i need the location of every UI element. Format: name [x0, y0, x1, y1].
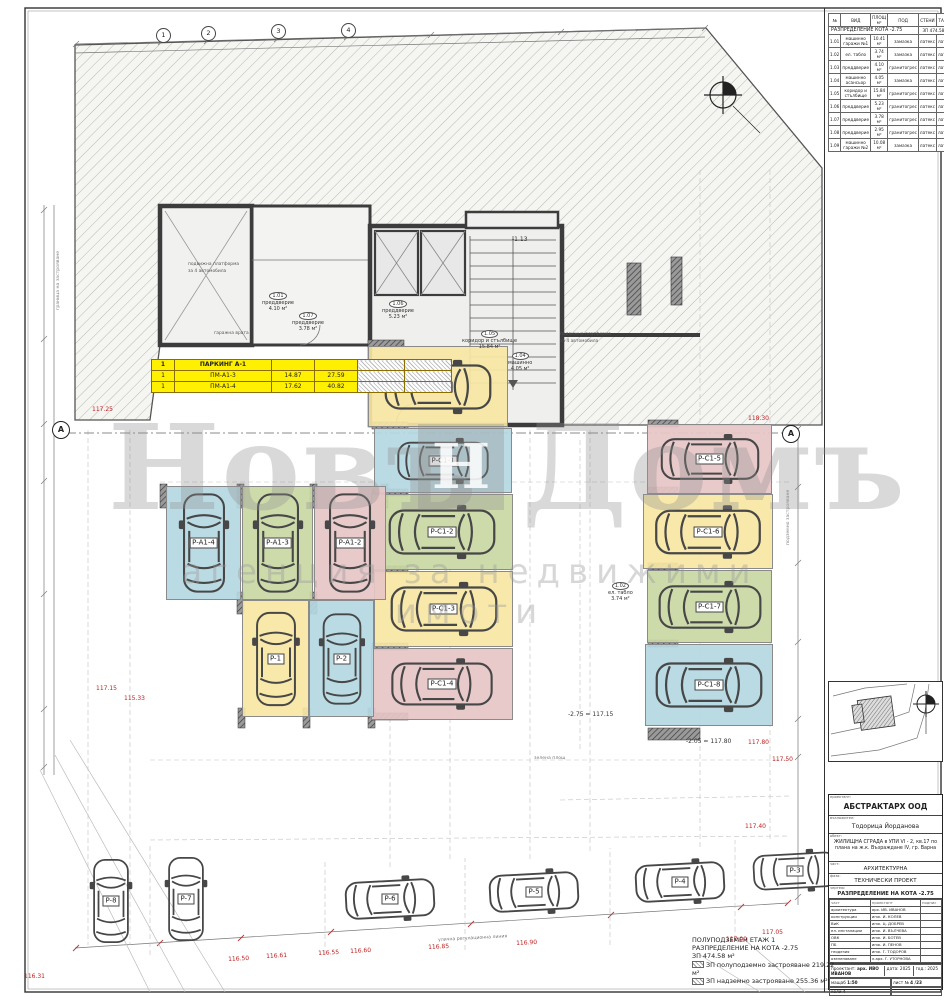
parking-spot-label: P-7 [177, 894, 194, 905]
signature-sign [920, 949, 941, 956]
phase-name: ТЕХНИЧЕСКИ ПРОЕКТ [829, 878, 942, 884]
site-location-box [828, 681, 943, 762]
schedule-cell: 10.08 м² [871, 139, 888, 152]
annotation: 116.55 [318, 950, 339, 958]
parking-spot-P-A1-3: P-A1-3 [242, 486, 313, 600]
schedule-cell: гранитогрес [888, 113, 919, 126]
signature-row: ОВКинж. И. БОТЕВ [830, 935, 942, 942]
company-name: АБСТРАКТАРХ ООД [829, 802, 942, 811]
garage-table-hatch-cell [358, 371, 405, 382]
schedule-cell: 4.10 м² [871, 61, 888, 74]
schedule-cell: латекс [918, 74, 936, 87]
part-label: част: [830, 862, 840, 866]
parking-spot-label: P-A1-3 [263, 538, 292, 549]
signature-row: конструкцииинж. И. КОЛЕВ [830, 914, 942, 921]
annotation: 117.15 [96, 686, 117, 693]
room-label-1.07: 1.07преддверие3.78 м² [292, 312, 324, 332]
annotation: 117.25 [92, 407, 113, 414]
signature-name: инж. И. ПЕНОВ [870, 942, 920, 949]
annotation: подземно застрояване [786, 490, 793, 545]
schedule-cell: латекс [937, 139, 944, 152]
object-label: обект: [830, 834, 842, 838]
parking-spot-P-A1-4: P-A1-4 [166, 486, 241, 600]
parking-spot-label: P-C1-2 [428, 527, 457, 538]
schedule-cell: латекс [918, 100, 936, 113]
signature-row: озеленяванел.арх. Г. УТОРНОВА [830, 956, 942, 963]
schedule-cell: машинно гаражи №2 [841, 139, 871, 152]
annotation: гаражна врата [214, 331, 249, 338]
copy-count: коли 4 [829, 987, 891, 996]
signature-part: конструкции [830, 914, 871, 921]
parking-spot-P-2: P-2 [309, 600, 374, 717]
annotation: 117.40 [745, 824, 766, 831]
schedule-cell: 1.04 [829, 74, 841, 87]
schedule-cell: латекс [937, 74, 944, 87]
annotation: 116.90 [516, 940, 537, 948]
schedule-cell: преддверие [841, 113, 871, 126]
schedule-cell: латекс [918, 139, 936, 152]
signature-row: ВиКинж. Ц. ДОБРЕВ [830, 921, 942, 928]
schedule-cell: замазка [888, 139, 919, 152]
parking-spot-label: P-1 [267, 653, 284, 664]
room-area: 15.84 м² [462, 344, 517, 350]
parking-spot-label: P-8 [102, 896, 119, 907]
part-name: АРХИТЕКТУРНА [829, 866, 942, 872]
schedule-cell: 3.78 м² [871, 113, 888, 126]
schedule-cell: латекс [918, 48, 936, 61]
signature-name: инж. Ц. ДОБРЕВ [870, 921, 920, 928]
parking-spot-P-C1-7: P-C1-7 [647, 570, 772, 643]
garage-table-cell: 17.62 [272, 382, 315, 393]
section-mark-2: А [782, 425, 800, 443]
parking-spot-label: P-A1-4 [189, 538, 218, 549]
schedule-cell: замазка [888, 74, 919, 87]
room-schedule-table: №ВИДПЛОЩ м²ПОДСТЕНИТАВАН РАЗПРЕДЕЛЕНИЕ К… [828, 13, 944, 152]
parking-spot-P-1: P-1 [242, 600, 309, 717]
schedule-row: 1.05коридор и стълбище15.84 м²гранитогре… [829, 87, 944, 100]
parking-spot-label: P-C1-7 [695, 601, 724, 612]
note-distribution: РАЗПРЕДЕЛЕНИЕ НА КОТА -2.75 [692, 944, 842, 952]
annotation: 115.33 [124, 696, 145, 703]
schedule-cell: латекс [937, 100, 944, 113]
parking-spot-P-C1-3: P-C1-3 [374, 571, 513, 647]
footer-spare [891, 987, 942, 996]
room-number: 1.04 [512, 352, 529, 360]
schedule-column-header: ВИД [841, 14, 871, 27]
schedule-cell: латекс [937, 48, 944, 61]
annotation: граница на застрояване [56, 251, 63, 310]
garage-table-row: 1ПАРКИНГ А-1 [152, 360, 452, 371]
parking-spot-label: P-C1-3 [429, 604, 458, 615]
signature-header-cell: част [830, 900, 871, 907]
signature-sign [920, 928, 941, 935]
schedule-row: 1.01машинно гаражи №110.41 м²замазкалате… [829, 35, 944, 48]
parking-spot-P-6: P-6 [327, 868, 453, 930]
note-area: ЗП 474.58 м² [692, 952, 842, 960]
annotation: -1.13 [512, 237, 528, 244]
garage-table-cell: 1 [152, 360, 175, 371]
annotation: подвижна платформа за 4 автомобила [188, 262, 239, 275]
annotation: подвижна платформа за 4 автомобила [560, 332, 611, 345]
annotation: -2.05 = 117.80 [686, 739, 731, 746]
schedule-cell: латекс [937, 113, 944, 126]
schedule-cell: латекс [918, 113, 936, 126]
schedule-area-note: ЗП 474.58 м² [918, 27, 944, 35]
room-label-1.04: 1.04машинно4.05 м² [508, 352, 532, 372]
title-block-footer: проектант: арх. ИВО ИВАНОВ дата: 2025 го… [829, 963, 942, 996]
signature-name: арх. ИВ. ИВАНОВ [870, 907, 920, 914]
drawing-note-block: ПОЛУПОДЗЕМЕН ЕТАЖ 1 РАЗПРЕДЕЛЕНИЕ НА КОТ… [692, 936, 842, 985]
signature-name: инж. Г. ТОДОРОВ [870, 949, 920, 956]
signature-name: инж. И. ВЪЛЧЕВА [870, 928, 920, 935]
axis-bubble-3: 3 [271, 24, 286, 39]
parking-spot-label: P-C1-4 [428, 679, 457, 690]
room-label-1.02: 1.02ел. табло3.74 м² [608, 582, 633, 602]
schedule-cell: латекс [937, 87, 944, 100]
schedule-cell: гранитогрес [888, 100, 919, 113]
schedule-cell: 1.09 [829, 139, 841, 152]
schedule-cell: преддверие [841, 126, 871, 139]
annotation: улична регулационна линия [438, 934, 507, 944]
parking-spot-label: P-5 [525, 887, 542, 898]
note-aboveground: ЗП надземно застрояване 255.36 м² [692, 977, 842, 985]
signature-sign [920, 907, 941, 914]
schedule-cell: 1.03 [829, 61, 841, 74]
annotation: зелена площ [534, 756, 565, 763]
parking-spot-P-C1-1: P-C1-1 [374, 428, 512, 493]
room-number: 1.05 [481, 330, 498, 338]
schedule-cell: 1.08 [829, 126, 841, 139]
annotation: 116.31 [24, 974, 45, 981]
annotation: 116.60 [350, 948, 371, 956]
garage-table-hatch-cell [405, 371, 452, 382]
signature-row: ел. инсталацииинж. И. ВЪЛЧЕВА [830, 928, 942, 935]
room-label-1.05: 1.05коридор и стълбище15.84 м² [462, 330, 517, 350]
signature-header-cell: проектант [870, 900, 920, 907]
parking-spot-P-7: P-7 [157, 843, 215, 955]
annotation: 116.85 [428, 944, 449, 952]
schedule-cell: 1.06 [829, 100, 841, 113]
parking-spot-label: P-C1-1 [429, 455, 458, 466]
garage-table-cell: 14.87 [272, 371, 315, 382]
signatures-table: частпроектантподписархитектураарх. ИВ. И… [829, 899, 942, 963]
schedule-cell: латекс [918, 126, 936, 139]
parking-spot-label: P-3 [786, 866, 803, 877]
annotation: -2.75 = 117.15 [568, 712, 613, 719]
schedule-cell: 1.01 [829, 35, 841, 48]
signature-row: ПБинж. И. ПЕНОВ [830, 942, 942, 949]
schedule-cell: латекс [937, 61, 944, 74]
client-name: Тодорица Йорданова [829, 823, 942, 830]
schedule-column-header: ПОД [888, 14, 919, 27]
signature-header-row: частпроектантподпис [830, 900, 942, 907]
parking-spot-P-A1-2: P-A1-2 [314, 486, 386, 600]
schedule-row: 1.04машинно асансьор4.05 м²замазкалатекс… [829, 74, 944, 87]
signature-sign [920, 914, 941, 921]
signature-part: ВиК [830, 921, 871, 928]
signature-row: геодезияинж. Г. ТОДОРОВ [830, 949, 942, 956]
drawing-name: РАЗПРЕДЕЛЕНИЕ НА КОТА -2.75 [829, 891, 942, 897]
phase-label: фаза: [830, 874, 841, 878]
signature-sign [920, 942, 941, 949]
garage-table-hatch-cell [405, 360, 452, 371]
note-floor: ПОЛУПОДЗЕМЕН ЕТАЖ 1 [692, 936, 842, 944]
schedule-row: 1.09машинно гаражи №210.08 м²замазкалате… [829, 139, 944, 152]
schedule-cell: латекс [937, 126, 944, 139]
schedule-cell: гранитогрес [888, 87, 919, 100]
client-label: възложител: [830, 816, 854, 820]
company-label: проектант: [830, 795, 851, 799]
site-location-map [829, 682, 942, 761]
room-area: 4.05 м² [508, 366, 532, 372]
schedule-cell: 1.05 [829, 87, 841, 100]
parking-spot-label: P-2 [333, 653, 350, 664]
plan-overlays: P-A1-1P-C1-1P-C1-2P-C1-3P-C1-4P-C1-5P-C1… [0, 0, 944, 1000]
schedule-column-header: ТАВАН [937, 14, 944, 27]
room-number: 1.01 [269, 292, 286, 300]
architectural-drawing-sheet: { "schedule": { "columns": ["№", "ВИД", … [0, 0, 944, 1000]
garage-table-cell: 40.82 [315, 382, 358, 393]
drawing-label: чертеж: [830, 886, 845, 890]
annotation: 116.50 [228, 956, 249, 964]
date: дата: 2025 [884, 966, 913, 976]
schedule-cell: машинно асансьор [841, 74, 871, 87]
room-number: 1.02 [612, 582, 629, 590]
garage-table-cell [315, 360, 358, 371]
garage-table-cell: ПМ-А1-4 [175, 382, 272, 393]
signature-name: инж. И. БОТЕВ [870, 935, 920, 942]
schedule-cell: преддверие [841, 61, 871, 74]
parking-spot-label: P-C1-8 [695, 680, 724, 691]
parking-spot-P-C1-5: P-C1-5 [647, 424, 772, 494]
signature-row: архитектураарх. ИВ. ИВАНОВ [830, 907, 942, 914]
schedule-cell: латекс [937, 35, 944, 48]
parking-spot-label: P-4 [671, 877, 688, 888]
garage-table-cell: ПМ-А1-3 [175, 371, 272, 382]
parking-spot-label: P-C1-5 [695, 454, 724, 465]
annotation: 118.30 [748, 416, 769, 423]
parking-spot-label: P-C1-6 [694, 526, 723, 537]
schedule-cell: 3.74 м² [871, 48, 888, 61]
schedule-cell: латекс [918, 61, 936, 74]
schedule-cell: 15.84 м² [871, 87, 888, 100]
garage-table-hatch-cell [405, 382, 452, 393]
signature-sign [920, 956, 941, 963]
schedule-row: 1.03преддверие4.10 м²гранитогреслатексла… [829, 61, 944, 74]
parking-spot-P-4: P-4 [617, 851, 743, 913]
room-area: 4.10 м² [262, 306, 294, 312]
annotation: 117.80 [748, 740, 769, 747]
schedule-cell: замазка [888, 35, 919, 48]
site-north-compass [913, 691, 939, 734]
axis-bubble-4: 4 [341, 23, 356, 38]
garage-table-cell: 1 [152, 371, 175, 382]
schedule-row: 1.02ел. табло3.74 м²замазкалатекслатекс [829, 48, 944, 61]
schedule-cell: преддверие [841, 100, 871, 113]
schedule-cell: 4.05 м² [871, 74, 888, 87]
schedule-cell: 1.02 [829, 48, 841, 61]
schedule-column-header: СТЕНИ [918, 14, 936, 27]
parking-spot-P-8: P-8 [82, 846, 140, 956]
schedule-cell: гранитогрес [888, 61, 919, 74]
garage-table-row: 1ПМ-А1-314.8727.59 [152, 371, 452, 382]
note-semiunderground: ЗП полуподземно застрояване 219.22 м² [692, 961, 842, 977]
parking-spot-label: P-6 [381, 894, 398, 905]
section-mark-1: А [52, 421, 70, 439]
hatch-swatch [692, 961, 704, 968]
schedule-row: 1.07преддверие3.78 м²гранитогреслатексла… [829, 113, 944, 126]
schedule-cell: ел. табло [841, 48, 871, 61]
parking-spot-P-C1-8: P-C1-8 [645, 644, 773, 726]
sheet-number: лист № 4 /23 [891, 978, 942, 987]
axis-bubble-1: 1 [156, 28, 171, 43]
schedule-row: 1.08преддверие2.95 м²гранитогреслатексла… [829, 126, 944, 139]
axis-bubble-2: 2 [201, 26, 216, 41]
garage-schedule-table: 1ПАРКИНГ А-11ПМ-А1-314.8727.591ПМ-А1-417… [151, 359, 452, 393]
schedule-cell: замазка [888, 48, 919, 61]
signature-name: инж. И. КОЛЕВ [870, 914, 920, 921]
schedule-column-header: ПЛОЩ м² [871, 14, 888, 27]
parking-spot-P-C1-6: P-C1-6 [643, 494, 773, 569]
room-area: 3.74 м² [608, 596, 633, 602]
schedule-cell: латекс [918, 35, 936, 48]
room-label-1.01: 1.01преддверие4.10 м² [262, 292, 294, 312]
garage-table-cell: ПАРКИНГ А-1 [175, 360, 272, 371]
object-name: ЖИЛИЩНА СГРАДА в УПИ VI - 2, кв.17 по пл… [829, 840, 942, 852]
garage-table-cell: 1 [152, 382, 175, 393]
parking-spot-label: P-A1-2 [336, 538, 365, 549]
schedule-cell: 2.95 м² [871, 126, 888, 139]
schedule-row: 1.06преддверие5.23 м²гранитогреслатексла… [829, 100, 944, 113]
schedule-cell: машинно гаражи №1 [841, 35, 871, 48]
schedule-cell: гранитогрес [888, 126, 919, 139]
title-block: проектант: АБСТРАКТАРХ ООД възложител: Т… [828, 794, 943, 990]
room-area: 5.23 м² [382, 314, 414, 320]
garage-table-cell [272, 360, 315, 371]
year: год.: 2025 [913, 966, 940, 976]
garage-table-cell: 27.59 [315, 371, 358, 382]
room-number: 1.07 [299, 312, 316, 320]
schedule-cell: латекс [918, 87, 936, 100]
garage-table-row: 1ПМ-А1-417.6240.82 [152, 382, 452, 393]
signature-header-cell: подпис [920, 900, 941, 907]
schedule-cell: 10.41 м² [871, 35, 888, 48]
room-label-1.06: 1.06преддверие5.23 м² [382, 300, 414, 320]
annotation: 117.50 [772, 757, 793, 764]
hatch-swatch [692, 978, 704, 985]
garage-table-hatch-cell [358, 360, 405, 371]
schedule-column-header: № [829, 14, 841, 27]
signature-part: ел. инсталации [830, 928, 871, 935]
parking-spot-P-C1-4: P-C1-4 [371, 648, 513, 720]
schedule-cell: 5.23 м² [871, 100, 888, 113]
schedule-cell: коридор и стълбище [841, 87, 871, 100]
schedule-title: РАЗПРЕДЕЛЕНИЕ КОТА -2.75 [829, 27, 919, 35]
garage-table-hatch-cell [358, 382, 405, 393]
annotation: 116.61 [266, 953, 287, 961]
signature-name: л.арх. Г. УТОРНОВА [870, 956, 920, 963]
signature-sign [920, 921, 941, 928]
room-area: 3.78 м² [292, 326, 324, 332]
signature-sign [920, 935, 941, 942]
parking-spot-P-C1-2: P-C1-2 [371, 494, 513, 570]
room-number: 1.06 [389, 300, 406, 308]
parking-spot-P-5: P-5 [471, 861, 597, 923]
signature-part: архитектура [830, 907, 871, 914]
schedule-cell: 1.07 [829, 113, 841, 126]
